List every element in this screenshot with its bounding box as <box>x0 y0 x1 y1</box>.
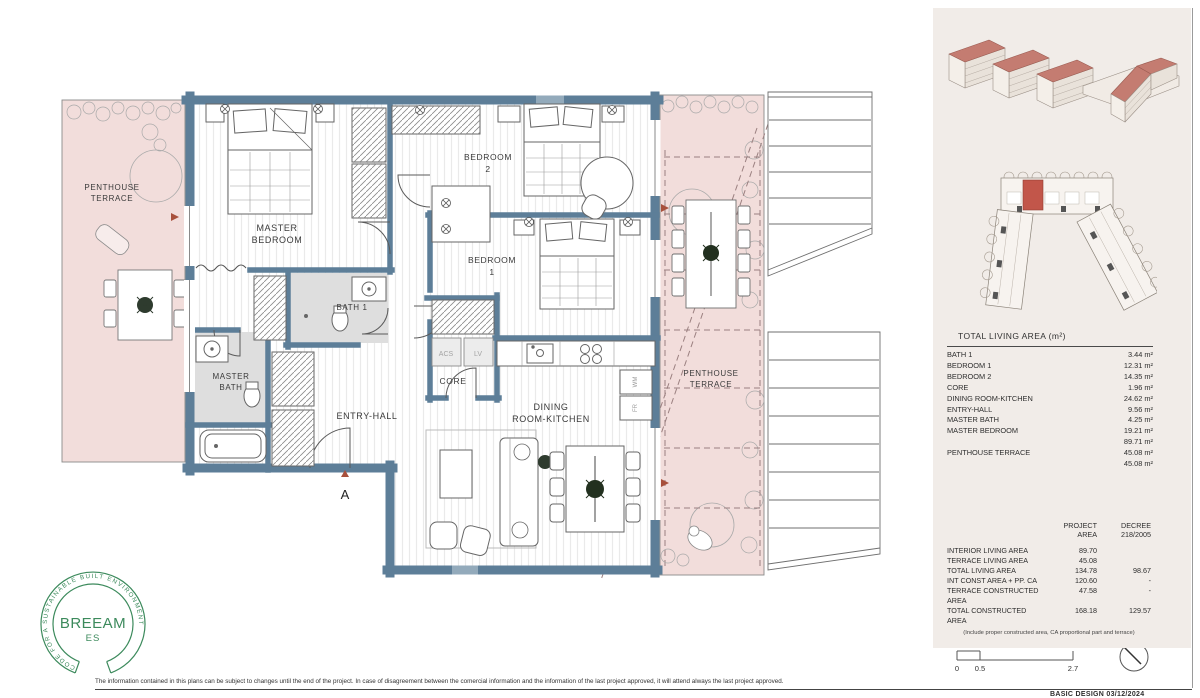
room-label-terrace-right: PENTHOUSE <box>683 369 738 378</box>
site-plan <box>977 166 1157 326</box>
area-table-header: PROJECT AREA DECREE 218/2005 <box>947 522 1151 539</box>
room-label-bedroom2b: 2 <box>485 164 490 174</box>
row-label: PENTHOUSE TERRACE <box>947 448 1030 459</box>
kitchen-counter <box>497 341 655 366</box>
row-decree-value: - <box>1103 576 1151 586</box>
scale-bar <box>957 651 1073 660</box>
row-value: 89.71 m² <box>1124 437 1153 448</box>
building-3d-view <box>941 14 1185 164</box>
room-label-master-bath2: BATH <box>219 383 242 392</box>
table-row: INT CONST AREA + PP. CA120.60- <box>947 576 1151 586</box>
row-decree-value <box>1103 556 1151 566</box>
apartment: ACS LV WM FR <box>184 96 661 575</box>
row-decree-value: 98.67 <box>1103 566 1151 576</box>
row-label: TERRACE CONSTRUCTED AREA <box>947 586 1045 606</box>
room-label-terrace-left2: TERRACE <box>91 194 133 203</box>
acs-label: ACS <box>439 351 454 358</box>
area-table-footnote: (Include proper constructed area, CA pro… <box>947 630 1151 636</box>
row-label: BATH 1 <box>947 350 972 361</box>
row-label: TOTAL CONSTRUCTED AREA <box>947 606 1045 626</box>
row-value: 45.08 m² <box>1124 448 1153 459</box>
room-label-terrace-left: PENTHOUSE <box>84 183 139 192</box>
row-label: TOTAL LIVING AREA <box>947 566 1045 576</box>
row-label: INTERIOR LIVING AREA <box>947 546 1045 556</box>
floor-plan-sheet: PENTHOUSE TERRACE <box>0 0 1200 698</box>
row-project-value: 89.70 <box>1045 546 1097 556</box>
row-value: 12.31 m² <box>1124 361 1153 372</box>
terrace-left: PENTHOUSE TERRACE <box>62 100 186 462</box>
breeam-logo: CODE FOR A SUSTAINABLE BUILT ENVIRONMENT… <box>28 564 158 688</box>
section-marker-label: A <box>341 487 350 502</box>
table-row: BEDROOM 214.35 m² <box>947 372 1153 383</box>
breeam-name: BREEAM <box>60 615 126 632</box>
table-row: DINING ROOM-KITCHEN24.62 m² <box>947 394 1153 405</box>
room-label-core: CORE <box>440 376 467 386</box>
washer-label: WM <box>633 377 639 388</box>
row-value: 14.35 m² <box>1124 372 1153 383</box>
room-label-bedroom1b: 1 <box>489 267 494 277</box>
room-label-bath1: BATH 1 <box>336 303 367 312</box>
row-value: 1.96 m² <box>1128 383 1153 394</box>
sheet-border <box>1192 8 1193 688</box>
scale-tick-05: 0.5 <box>975 664 985 673</box>
room-label-dining: DINING <box>533 402 568 412</box>
room-label-master-bath: MASTER <box>213 372 250 381</box>
row-label: MASTER BEDROOM <box>947 426 1018 437</box>
living-table-title: TOTAL LIVING AREA (m²) <box>947 328 1153 347</box>
row-label: BEDROOM 2 <box>947 372 991 383</box>
table-row: 89.71 m² <box>947 437 1153 448</box>
header-project2: AREA <box>1037 531 1097 540</box>
total-living-area-table: TOTAL LIVING AREA (m²) BATH 13.44 m² BED… <box>947 328 1153 470</box>
table-row: CORE1.96 m² <box>947 383 1153 394</box>
row-value: 3.44 m² <box>1128 350 1153 361</box>
room-label-bedroom1: BEDROOM <box>468 255 516 265</box>
table-row: TOTAL LIVING AREA134.7898.67 <box>947 566 1151 576</box>
row-project-value: 47.58 <box>1045 586 1097 606</box>
table-row: MASTER BATH4.25 m² <box>947 415 1153 426</box>
row-label: INT CONST AREA + PP. CA <box>947 576 1045 586</box>
row-value: 9.56 m² <box>1128 405 1153 416</box>
fridge-label: FR <box>633 403 639 412</box>
row-label: ENTRY-HALL <box>947 405 992 416</box>
room-label-bedroom2: BEDROOM <box>464 152 512 162</box>
breeam-sub: ES <box>86 633 101 644</box>
scale-tick-0: 0 <box>955 664 959 673</box>
row-value: 19.21 m² <box>1124 426 1153 437</box>
row-decree-value <box>1103 546 1151 556</box>
row-project-value: 120.60 <box>1045 576 1097 586</box>
table-row: BATH 13.44 m² <box>947 350 1153 361</box>
room-label-entry-hall: ENTRY-HALL <box>336 411 397 421</box>
disclaimer-text: The information contained in this plans … <box>95 678 784 685</box>
table-row: 45.08 m² <box>947 459 1153 470</box>
footer-divider <box>95 689 1192 690</box>
row-value: 4.25 m² <box>1128 415 1153 426</box>
adjacent-roof-lower <box>768 332 880 570</box>
scale-tick-27: 2.7 <box>1068 664 1078 673</box>
row-project-value: 134.78 <box>1045 566 1097 576</box>
lv-label: LV <box>474 351 482 358</box>
row-label: TERRACE LIVING AREA <box>947 556 1045 566</box>
table-row: PENTHOUSE TERRACE45.08 m² <box>947 448 1153 459</box>
room-label-master-bedroom: MASTER <box>256 223 297 233</box>
row-label: BEDROOM 1 <box>947 361 991 372</box>
table-row: BEDROOM 112.31 m² <box>947 361 1153 372</box>
adjacent-roof-upper <box>768 92 872 276</box>
table-row: TOTAL CONSTRUCTED AREA168.18129.57 <box>947 606 1151 626</box>
room-label-master-bedroom2: BEDROOM <box>252 235 303 245</box>
table-row: TERRACE LIVING AREA45.08 <box>947 556 1151 566</box>
row-value: 45.08 m² <box>1124 459 1153 470</box>
table-row: MASTER BEDROOM19.21 m² <box>947 426 1153 437</box>
row-decree-value: 129.57 <box>1103 606 1151 626</box>
table-row: INTERIOR LIVING AREA89.70 <box>947 546 1151 556</box>
table-row: TERRACE CONSTRUCTED AREA47.58- <box>947 586 1151 606</box>
row-decree-value: - <box>1103 586 1151 606</box>
row-label: MASTER BATH <box>947 415 999 426</box>
design-stamp: BASIC DESIGN 03/12/2024 <box>1050 691 1144 698</box>
row-project-value: 45.08 <box>1045 556 1097 566</box>
row-label: CORE <box>947 383 968 394</box>
constructed-area-table: PROJECT AREA DECREE 218/2005 INTERIOR LI… <box>947 522 1151 636</box>
header-decree2: 218/2005 <box>1099 531 1151 540</box>
row-project-value: 168.18 <box>1045 606 1097 626</box>
table-row: ENTRY-HALL9.56 m² <box>947 405 1153 416</box>
row-label: DINING ROOM-KITCHEN <box>947 394 1033 405</box>
row-value: 24.62 m² <box>1124 394 1153 405</box>
room-label-dining2: ROOM-KITCHEN <box>512 414 590 424</box>
room-label-terrace-right2: TERRACE <box>690 380 732 389</box>
